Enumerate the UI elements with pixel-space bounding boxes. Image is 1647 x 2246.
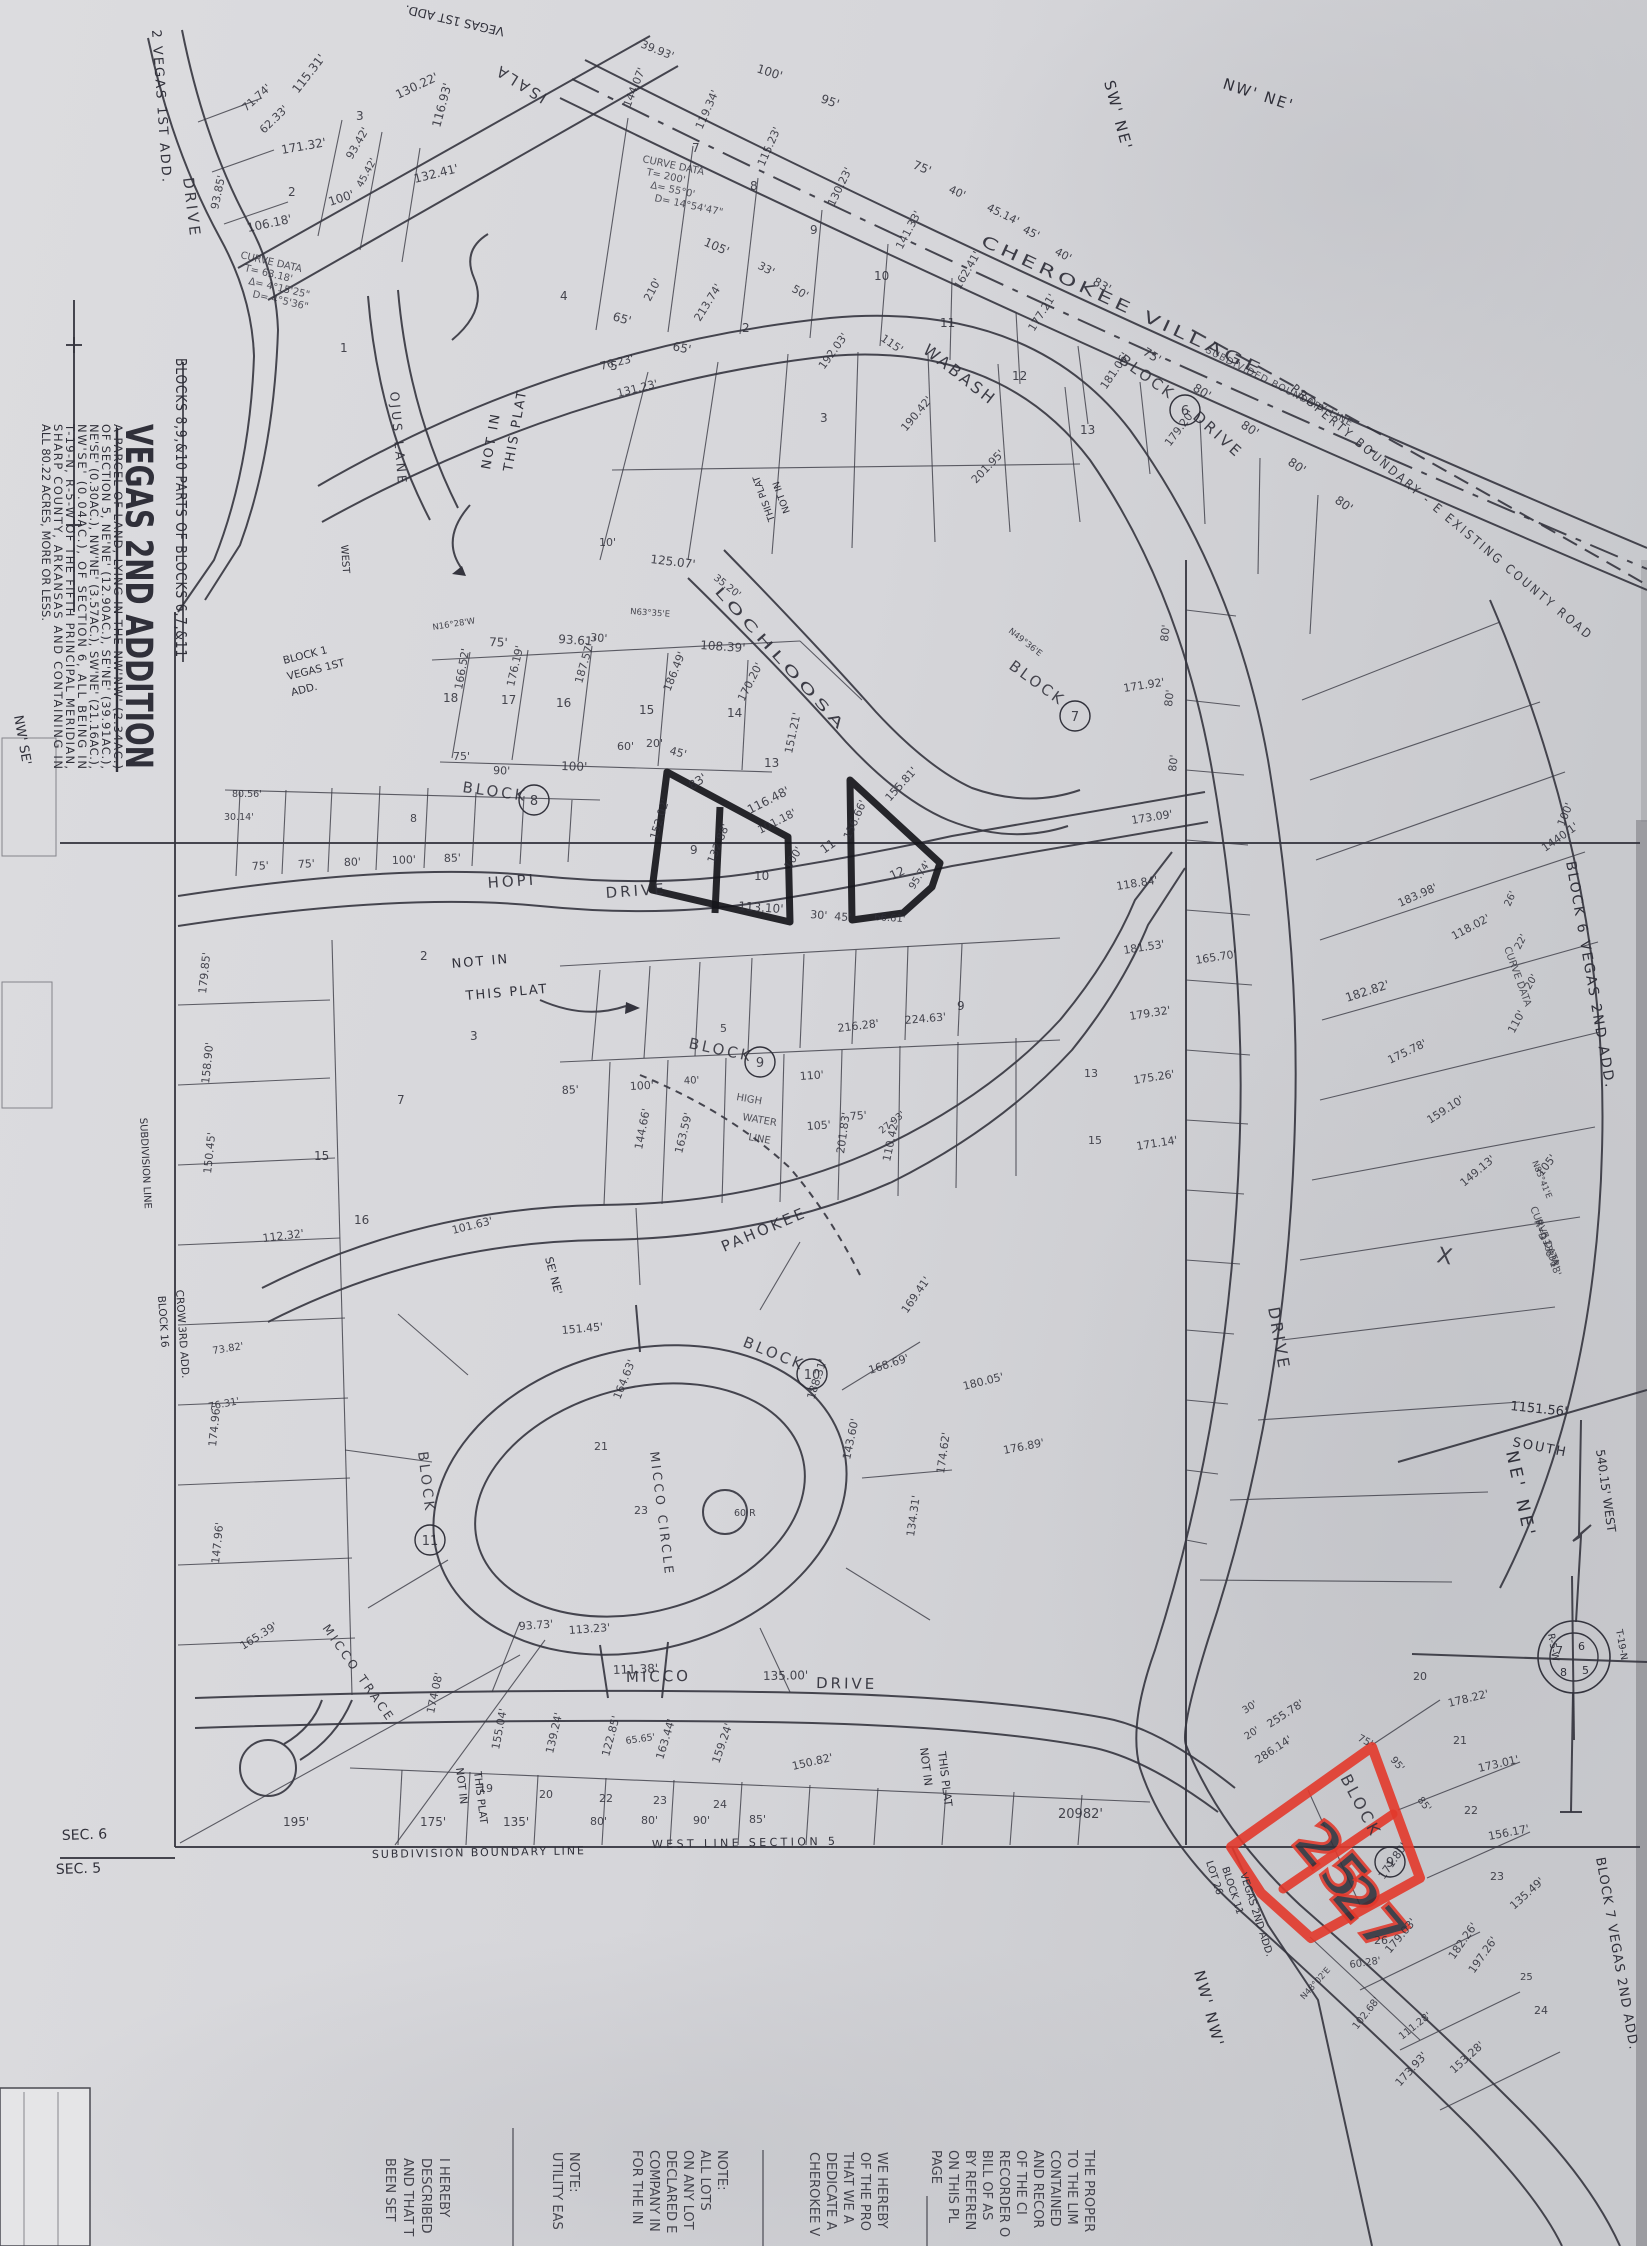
map-annotation: 93.73' xyxy=(518,1618,553,1633)
map-annotation: 5 xyxy=(720,1022,727,1035)
map-annotation: 9 xyxy=(957,999,965,1013)
map-annotation: 16 xyxy=(354,1213,369,1227)
margin-note-line: CONTAINED xyxy=(1047,2150,1062,2227)
margin-note-line: BILL OF AS xyxy=(979,2150,994,2220)
map-annotation: 5 xyxy=(610,359,618,373)
margin-note-line: NOTE: xyxy=(566,2152,581,2193)
map-annotation: 3 xyxy=(470,1029,478,1043)
section-quadrant-6: 6 xyxy=(1578,1640,1585,1653)
map-annotation: 75' xyxy=(849,1109,867,1123)
margin-note-line: THAT WE A xyxy=(840,2151,855,2224)
map-annotation: 15 xyxy=(314,1149,329,1163)
map-annotation: 45' xyxy=(834,910,852,924)
plat-map-canvas: 25 27 106.18'100'130.22'132.41'116.93'11… xyxy=(0,0,1647,2246)
map-annotation: 3 xyxy=(820,411,828,425)
street-label-micco: MICCO xyxy=(626,1667,691,1686)
map-annotation: 9 xyxy=(810,223,818,237)
map-annotation: 75' xyxy=(297,857,315,871)
map-annotation: 80' xyxy=(344,855,361,869)
corner-stamp-box xyxy=(0,2088,90,2246)
map-annotation: 20' xyxy=(646,737,663,750)
margin-note-line: CHEROKEE V xyxy=(806,2152,821,2236)
page-edge-shadow xyxy=(1641,560,1647,822)
map-annotation: 30' xyxy=(590,631,608,645)
section-quadrant-5: 5 xyxy=(1582,1664,1589,1677)
map-annotation: 18 xyxy=(443,691,458,705)
map-annotation: 2 xyxy=(742,321,750,335)
map-annotation: 85' xyxy=(561,1083,579,1097)
map-annotation: 23 xyxy=(1490,1870,1504,1883)
map-annotation: 66.61' xyxy=(874,912,906,925)
map-annotation: 30.14' xyxy=(224,812,254,823)
block-number: 9 xyxy=(1386,1856,1394,1871)
map-annotation: 2 xyxy=(288,185,296,199)
map-annotation: 75' xyxy=(489,635,508,650)
map-annotation: 11 xyxy=(940,316,955,330)
margin-note-line: THE PROPER xyxy=(1081,2149,1096,2232)
margin-note-line: DEDICATE A xyxy=(823,2152,838,2230)
margin-note-line: UTILITY EAS xyxy=(549,2152,564,2230)
margin-note-line: COMPANY IN xyxy=(646,2150,661,2232)
map-annotation: 80' xyxy=(1166,754,1181,772)
map-annotation: 4 xyxy=(560,289,568,303)
margin-note-line: PAGE xyxy=(928,2150,943,2184)
map-annotation: 24 xyxy=(713,1798,727,1811)
map-annotation: 21 xyxy=(594,1440,608,1453)
map-annotation: 80' xyxy=(590,1815,607,1828)
margin-note-line: DECLARED E xyxy=(663,2150,678,2233)
map-annotation: 8 xyxy=(750,179,758,193)
scanned-plat-page: 25 27 106.18'100'130.22'132.41'116.93'11… xyxy=(0,0,1647,2246)
margin-note-line: OF THE CI xyxy=(1013,2150,1028,2215)
map-annotation: 195' xyxy=(283,1815,309,1829)
map-annotation: 30' xyxy=(810,908,828,922)
map-annotation: 7 xyxy=(397,1093,405,1107)
margin-note-line: OF THE PRO xyxy=(857,2152,872,2231)
map-annotation: 135.00' xyxy=(763,1668,809,1683)
margin-note-line: BY REFEREN xyxy=(962,2150,977,2230)
map-annotation: 17 xyxy=(501,693,516,707)
map-annotation: 100' xyxy=(629,1079,654,1093)
map-annotation: 15 xyxy=(639,703,654,717)
map-annotation: 13 xyxy=(1080,423,1095,437)
map-annotation: 90' xyxy=(493,764,510,778)
map-annotation: 90' xyxy=(693,1814,710,1827)
map-annotation: 13 xyxy=(764,756,779,770)
margin-note-line: AND RECOR xyxy=(1030,2150,1045,2228)
map-annotation: 23 xyxy=(653,1794,667,1807)
block-number: 8 xyxy=(530,794,538,809)
map-annotation: 20 xyxy=(1413,1670,1427,1683)
margin-note-line: BEEN SET xyxy=(382,2158,397,2222)
map-annotation: 22 xyxy=(1464,1804,1478,1817)
margin-note-line: TO THE LIM xyxy=(1064,2149,1079,2225)
block-number: 7 xyxy=(1071,710,1079,725)
map-annotation: 26 xyxy=(1374,1934,1388,1947)
map-annotation: 60 R xyxy=(734,1508,756,1519)
legal-line: ALL 80.22 ACRES, MORE OR LESS. xyxy=(39,424,53,621)
west-label: WEST xyxy=(338,544,351,574)
map-annotation: 10' xyxy=(599,536,616,549)
margin-note-line: NOTE: xyxy=(714,2150,729,2191)
map-annotation: 24 xyxy=(1534,2004,1548,2017)
map-annotation: 110' xyxy=(799,1068,824,1083)
map-annotation: 14 xyxy=(727,706,742,720)
margin-note-line: FOR THE IN xyxy=(629,2150,644,2225)
margin-note-line: AND THAT T xyxy=(400,2158,415,2236)
margin-note-line: WE HEREBY xyxy=(874,2152,889,2229)
margin-note-line: DESCRIBED xyxy=(418,2158,433,2234)
block-number: 11 xyxy=(422,1534,439,1549)
map-annotation: 10 xyxy=(754,869,769,883)
map-annotation: 20 xyxy=(539,1788,553,1801)
margin-note-line: ALL LOTS xyxy=(697,2150,712,2211)
map-annotation: 80' xyxy=(641,1814,658,1827)
map-annotation: 12 xyxy=(1012,369,1027,383)
map-annotation: 2 xyxy=(420,949,428,963)
map-annotation: 135' xyxy=(503,1815,529,1829)
title-struck-line: BLOCKS 8,9,&10 PARTS OF BLOCKS 6,7,&11 xyxy=(172,358,190,658)
map-annotation: 23 xyxy=(634,1504,648,1517)
map-annotation: 22 xyxy=(599,1792,613,1805)
section-5-label: SEC. 5 xyxy=(56,1860,102,1878)
map-annotation: 21 xyxy=(1453,1734,1467,1747)
map-annotation: 25 xyxy=(1520,1972,1533,1983)
map-annotation: 10 xyxy=(874,269,889,283)
map-annotation: 60' xyxy=(617,740,634,753)
margin-note-line: ON THIS PL xyxy=(945,2150,960,2224)
map-annotation: 7 xyxy=(692,141,700,155)
map-annotation: 85' xyxy=(444,851,461,865)
map-annotation: 20982' xyxy=(1058,1807,1103,1822)
map-annotation: 100' xyxy=(392,853,416,867)
margin-note-line: I HEREBY xyxy=(436,2158,451,2217)
map-annotation: 8 xyxy=(410,812,417,825)
street-label-hopi: HOPI xyxy=(487,871,537,892)
block-number: 9 xyxy=(756,1056,764,1071)
map-annotation: 1 xyxy=(340,341,348,355)
map-annotation: 13 xyxy=(1084,1067,1098,1080)
map-annotation: 80' xyxy=(1158,624,1173,642)
map-annotation: 75' xyxy=(251,859,269,873)
section-quadrant-8: 8 xyxy=(1560,1666,1567,1679)
map-annotation: 40' xyxy=(684,1075,700,1087)
margin-note-line: RECORDER O xyxy=(996,2150,1011,2237)
map-annotation: 75' xyxy=(453,750,470,763)
block-number: 10 xyxy=(804,1368,821,1383)
map-annotation: 16 xyxy=(556,696,571,710)
map-annotation: 80.56' xyxy=(232,789,262,800)
map-annotation: 9 xyxy=(690,843,698,857)
map-annotation: 85' xyxy=(749,1813,766,1826)
map-annotation: 100' xyxy=(561,759,588,774)
map-annotation: 175' xyxy=(420,1815,446,1829)
map-annotation: 15 xyxy=(1088,1134,1102,1147)
map-annotation: 80' xyxy=(1162,689,1177,707)
map-annotation: 3 xyxy=(356,109,364,123)
section-6-label: SEC. 6 xyxy=(62,1826,108,1844)
block-number: 6 xyxy=(1181,404,1189,419)
map-annotation: 105' xyxy=(806,1118,831,1133)
margin-note-line: ON ANY LOT xyxy=(680,2150,695,2230)
street-label-micco-drive: DRIVE xyxy=(816,1674,877,1693)
